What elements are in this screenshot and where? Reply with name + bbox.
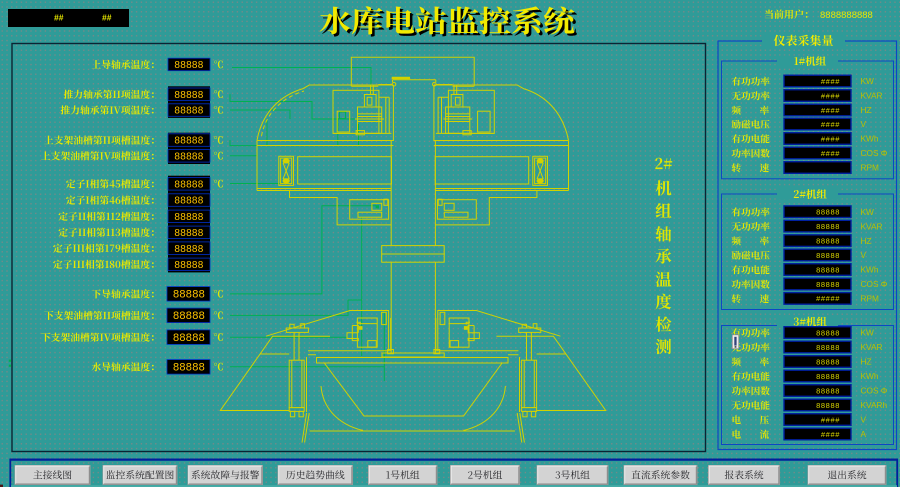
svg-text:A: A bbox=[861, 429, 867, 439]
svg-text:88888: 88888 bbox=[816, 265, 840, 274]
svg-text:V: V bbox=[861, 415, 867, 425]
svg-text:88888: 88888 bbox=[816, 328, 840, 337]
svg-text:KVARh: KVARh bbox=[861, 400, 888, 410]
svg-text:##: ## bbox=[102, 13, 112, 23]
svg-text:##: ## bbox=[54, 13, 64, 23]
svg-text:KWh: KWh bbox=[861, 134, 879, 144]
svg-text:KVAR: KVAR bbox=[861, 221, 883, 231]
svg-text:88888: 88888 bbox=[174, 212, 203, 223]
svg-text:88888: 88888 bbox=[174, 244, 203, 255]
svg-text:88888: 88888 bbox=[174, 179, 203, 190]
svg-text:#####: ##### bbox=[816, 294, 840, 303]
svg-text:88888: 88888 bbox=[173, 289, 205, 301]
svg-text:88888: 88888 bbox=[174, 136, 203, 147]
svg-text:88888: 88888 bbox=[174, 228, 203, 239]
svg-text:####: #### bbox=[821, 77, 840, 86]
svg-text:88888: 88888 bbox=[816, 343, 840, 352]
svg-text:COS Φ: COS Φ bbox=[861, 279, 888, 289]
svg-text:88888: 88888 bbox=[174, 60, 203, 71]
svg-text:KW: KW bbox=[861, 207, 875, 217]
svg-text:88888: 88888 bbox=[174, 106, 203, 117]
svg-text:88888: 88888 bbox=[816, 372, 840, 381]
svg-text:88888: 88888 bbox=[173, 310, 205, 322]
svg-text:HZ: HZ bbox=[861, 236, 872, 246]
svg-text:COS Φ: COS Φ bbox=[861, 386, 888, 396]
svg-text:RPM: RPM bbox=[861, 294, 880, 304]
svg-text:88888: 88888 bbox=[816, 251, 840, 260]
svg-text:####: #### bbox=[821, 430, 840, 439]
svg-text:88888: 88888 bbox=[816, 386, 840, 395]
svg-text:88888: 88888 bbox=[816, 222, 840, 231]
svg-text:HZ: HZ bbox=[861, 105, 872, 115]
svg-text:88888: 88888 bbox=[816, 357, 840, 366]
svg-text:KW: KW bbox=[861, 328, 875, 338]
svg-text:####: #### bbox=[821, 149, 840, 158]
svg-text:KVAR: KVAR bbox=[861, 342, 883, 352]
svg-text:####: #### bbox=[821, 415, 840, 424]
svg-text:88888: 88888 bbox=[173, 361, 205, 373]
svg-text:COS Φ: COS Φ bbox=[861, 148, 888, 158]
svg-text:88888: 88888 bbox=[816, 401, 840, 410]
svg-text:88888: 88888 bbox=[173, 332, 205, 344]
svg-text:RPM: RPM bbox=[861, 163, 880, 173]
svg-text:88888: 88888 bbox=[174, 90, 203, 101]
svg-text:88888: 88888 bbox=[816, 208, 840, 217]
svg-text:####: #### bbox=[821, 134, 840, 143]
svg-text:88888: 88888 bbox=[174, 260, 203, 271]
svg-text:88888: 88888 bbox=[816, 280, 840, 289]
svg-text:KWh: KWh bbox=[861, 371, 879, 381]
svg-text:88888: 88888 bbox=[174, 151, 203, 162]
svg-text:V: V bbox=[861, 119, 867, 129]
svg-text:HZ: HZ bbox=[861, 357, 872, 367]
svg-text:####: #### bbox=[821, 120, 840, 129]
svg-text:####: #### bbox=[821, 91, 840, 100]
svg-text:####: #### bbox=[821, 106, 840, 115]
svg-text:8888888888: 8888888888 bbox=[820, 10, 873, 21]
svg-text:KW: KW bbox=[861, 76, 875, 86]
svg-text:88888: 88888 bbox=[174, 196, 203, 207]
svg-text:88888: 88888 bbox=[816, 236, 840, 245]
svg-text:V: V bbox=[861, 250, 867, 260]
svg-text:KWh: KWh bbox=[861, 265, 879, 275]
svg-text:KVAR: KVAR bbox=[861, 91, 883, 101]
